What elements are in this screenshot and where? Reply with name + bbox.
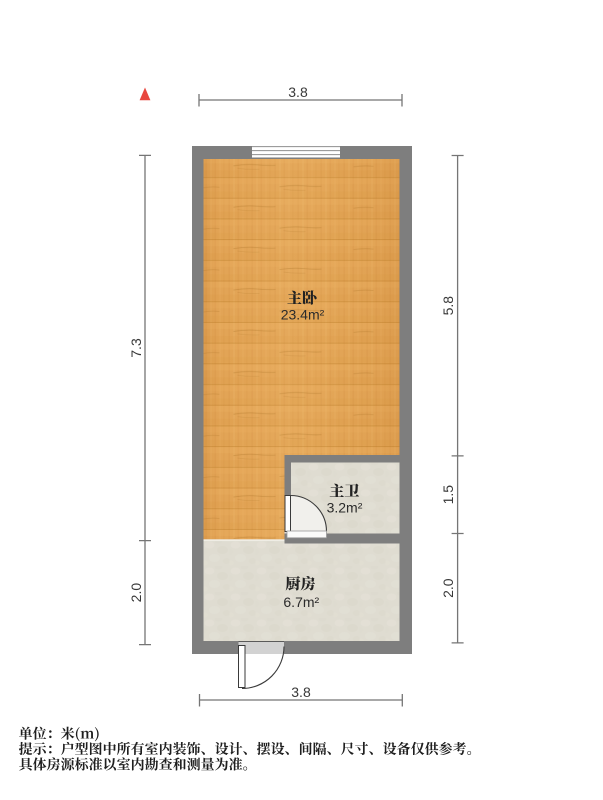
svg-text:1.5: 1.5 — [440, 485, 456, 505]
svg-text:3.8: 3.8 — [291, 684, 311, 700]
svg-text:5.8: 5.8 — [440, 296, 456, 316]
svg-text:6.7m²: 6.7m² — [283, 594, 319, 610]
svg-text:23.4m²: 23.4m² — [281, 307, 325, 323]
svg-text:7.3: 7.3 — [128, 338, 144, 358]
svg-text:3.2m²: 3.2m² — [327, 499, 363, 515]
svg-text:2.0: 2.0 — [440, 578, 456, 598]
svg-text:2.0: 2.0 — [128, 583, 144, 603]
svg-text:3.8: 3.8 — [288, 84, 308, 100]
